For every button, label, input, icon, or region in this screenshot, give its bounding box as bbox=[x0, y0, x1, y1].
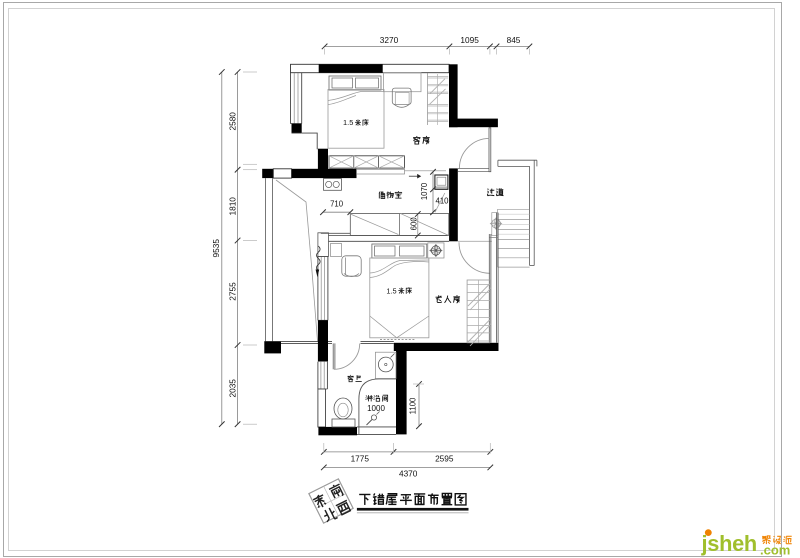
svg-text:845: 845 bbox=[507, 35, 521, 45]
svg-text:4370: 4370 bbox=[399, 469, 418, 479]
svg-text:1000: 1000 bbox=[367, 404, 385, 413]
svg-text:410: 410 bbox=[435, 196, 449, 205]
svg-text:600: 600 bbox=[410, 217, 419, 231]
svg-text:1100: 1100 bbox=[409, 397, 418, 414]
svg-text:.com: .com bbox=[760, 542, 790, 557]
svg-text:2755: 2755 bbox=[228, 282, 238, 301]
svg-text:2595: 2595 bbox=[435, 454, 454, 464]
svg-text:9535: 9535 bbox=[211, 239, 221, 258]
svg-text:1070: 1070 bbox=[420, 182, 429, 200]
svg-text:1810: 1810 bbox=[228, 197, 238, 216]
svg-text:1095: 1095 bbox=[460, 35, 479, 45]
svg-text:2035: 2035 bbox=[228, 379, 238, 398]
svg-text:1775: 1775 bbox=[351, 454, 370, 464]
svg-text:1.5: 1.5 bbox=[386, 286, 396, 295]
svg-text:3270: 3270 bbox=[380, 35, 399, 45]
svg-text:710: 710 bbox=[330, 200, 344, 209]
svg-text:1.5: 1.5 bbox=[343, 118, 353, 127]
svg-text:2580: 2580 bbox=[228, 112, 238, 131]
